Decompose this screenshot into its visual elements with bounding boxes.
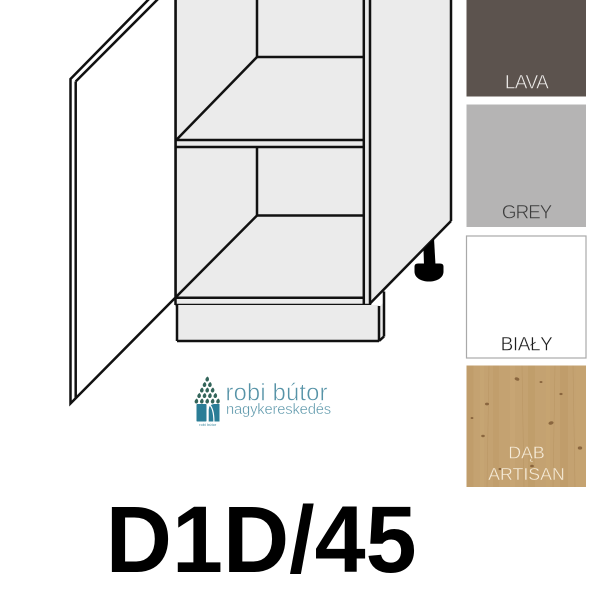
svg-text:D1D/45: D1D/45 bbox=[106, 485, 417, 592]
svg-text:nagykereskedés: nagykereskedés bbox=[226, 402, 331, 418]
svg-text:LAVA: LAVA bbox=[505, 73, 549, 94]
svg-text:BIAŁY: BIAŁY bbox=[501, 335, 554, 356]
svg-text:DĄB: DĄB bbox=[508, 443, 545, 463]
svg-text:ARTISAN: ARTISAN bbox=[488, 464, 565, 484]
svg-text:robi bútor: robi bútor bbox=[199, 423, 217, 427]
svg-text:GREY: GREY bbox=[502, 203, 553, 224]
